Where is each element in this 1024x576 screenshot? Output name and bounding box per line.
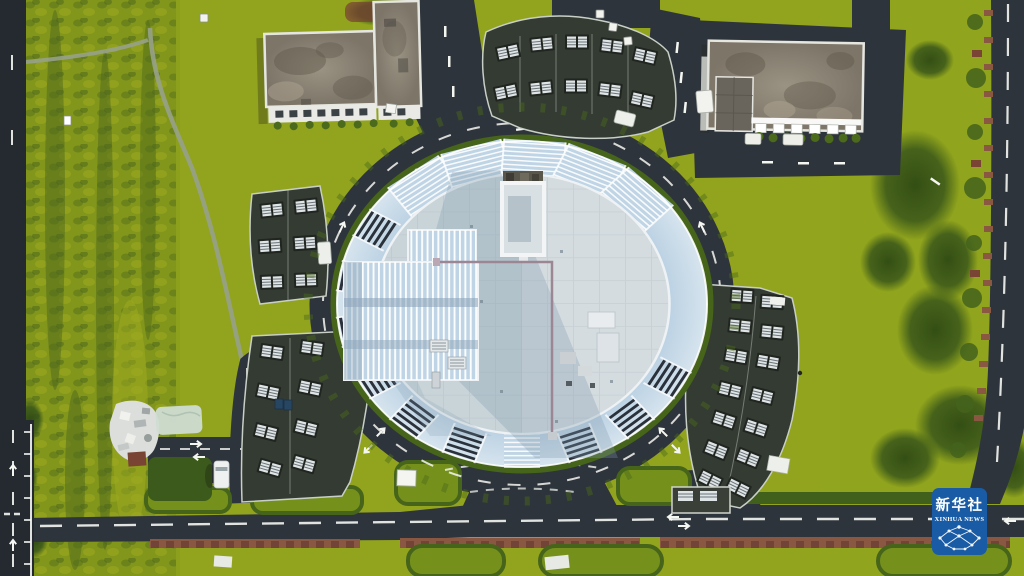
- warehouse-top-right: [695, 40, 864, 146]
- utility-shed: [672, 487, 730, 513]
- aerial-photograph: 新华社 XINHUA NEWS: [0, 0, 1024, 576]
- sign-board: [64, 116, 71, 125]
- watermark-en-text: XINHUA NEWS: [935, 516, 985, 523]
- white-van: [205, 461, 229, 488]
- watermark-cn-text: 新华社: [936, 496, 984, 514]
- storage-tarp: [155, 405, 202, 435]
- red-shed: [128, 451, 147, 466]
- courtyard: [502, 171, 544, 262]
- xinhua-watermark: 新华社 XINHUA NEWS: [932, 488, 987, 555]
- pedestrian: [798, 371, 802, 375]
- building-cluster-west-upper: [250, 186, 332, 304]
